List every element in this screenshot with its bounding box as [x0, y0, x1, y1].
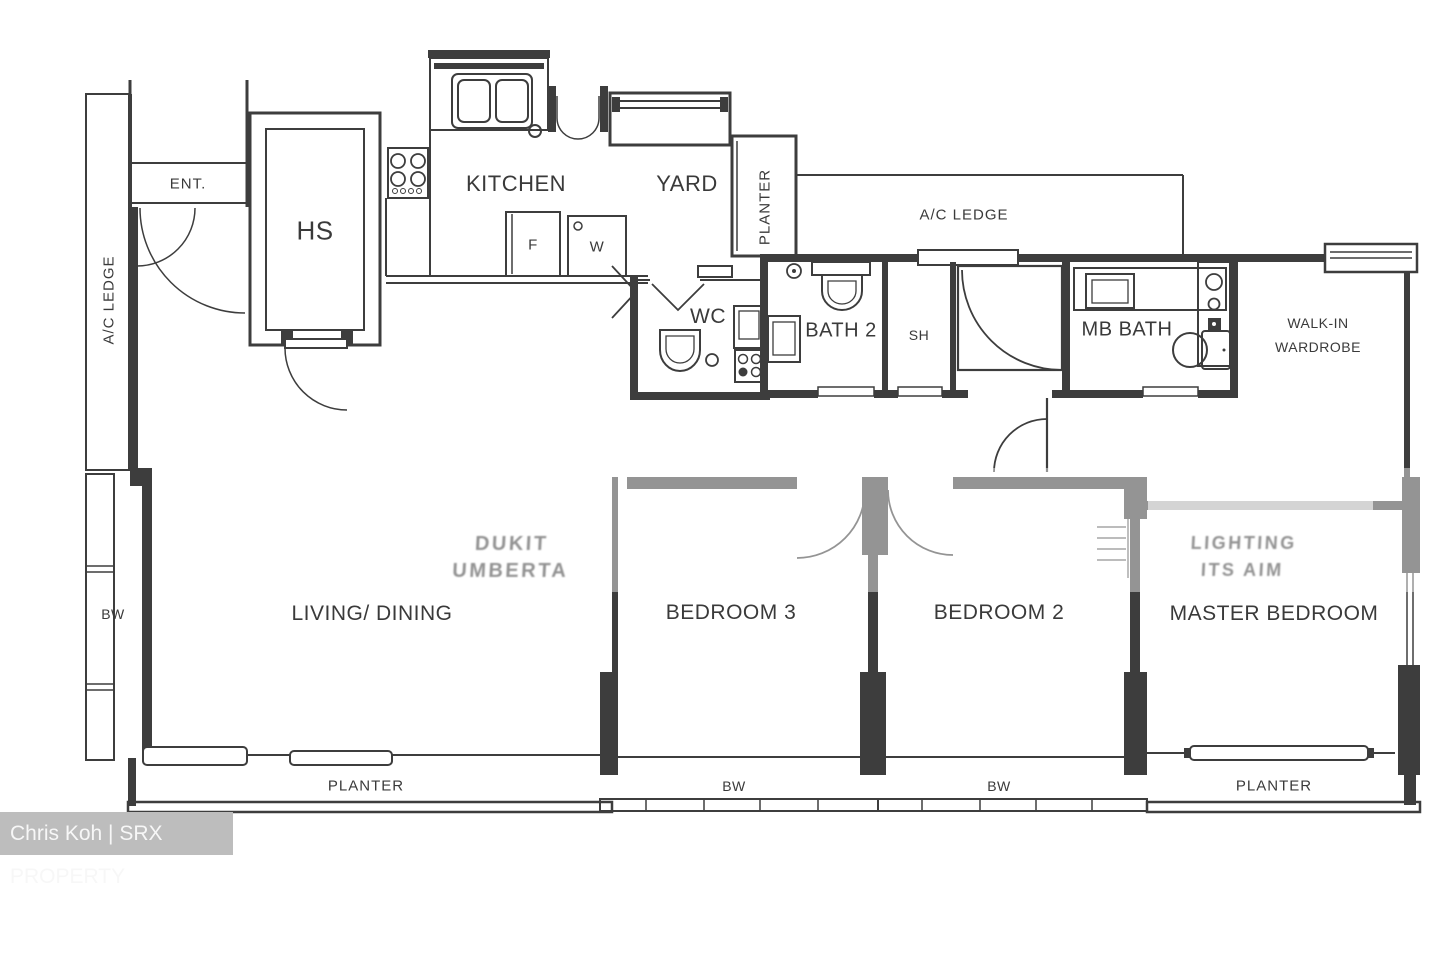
wardrobe-right-wall	[1404, 272, 1410, 477]
label-fridge: F	[528, 237, 538, 254]
label-living-dining: LIVING/ DINING	[291, 602, 452, 626]
label-ac-ledge-top: A/C LEDGE	[919, 207, 1008, 224]
bottom-walls-windows-planters	[128, 746, 1420, 812]
label-planter-yard: PLANTER	[757, 169, 774, 245]
label-washer: W	[590, 239, 605, 256]
label-wc: WC	[690, 305, 726, 329]
label-ent: ENT.	[170, 176, 207, 193]
label-bw-left: BW	[101, 606, 125, 622]
label-bath2: BATH 2	[805, 320, 877, 343]
label-yard: YARD	[656, 171, 718, 197]
label-mb-bath: MB BATH	[1082, 319, 1173, 342]
label-bedroom2: BEDROOM 2	[934, 601, 1065, 625]
ghost-right-line1: LIGHTING	[1190, 530, 1297, 557]
label-walkin-line1: WALK-IN	[1287, 315, 1348, 331]
kitchen-yard-door	[548, 86, 608, 139]
label-planter-living: PLANTER	[328, 778, 404, 795]
label-sh: SH	[909, 327, 929, 343]
label-bw-bedroom2: BW	[987, 778, 1011, 794]
label-hs: HS	[296, 216, 333, 247]
label-bw-bedroom3: BW	[722, 778, 746, 794]
label-planter-master: PLANTER	[1236, 778, 1312, 795]
ghost-right-line2: ITS AIM	[1189, 557, 1296, 584]
label-kitchen: KITCHEN	[466, 171, 566, 197]
wc-walls-fixtures	[612, 258, 770, 400]
ghost-watermark-right: LIGHTING ITS AIM	[1189, 530, 1298, 584]
hs-shelter-walls-door	[250, 113, 380, 410]
label-ac-ledge-left: A/C LEDGE	[101, 255, 118, 344]
ghost-left-line1: DUKIT	[453, 531, 570, 558]
floorplan-canvas: DUKIT UMBERTA LIGHTING ITS AIM ENT. HS K…	[0, 0, 1440, 956]
ghost-watermark-left: DUKIT UMBERTA	[452, 531, 571, 585]
entrance-walls-door	[130, 80, 247, 313]
label-master-bedroom: MASTER BEDROOM	[1170, 602, 1379, 626]
yard-window	[610, 93, 730, 145]
kitchen-counters-sink-stove	[386, 50, 648, 283]
fridge-washer-boxes	[506, 212, 626, 276]
label-walkin-line2: WARDROBE	[1275, 339, 1361, 355]
ghost-left-line2: UMBERTA	[452, 558, 569, 585]
label-bedroom3: BEDROOM 3	[666, 601, 797, 625]
left-ac-ledge-walls	[86, 94, 152, 486]
master-shower-stall-doors	[956, 262, 1070, 472]
interior-left-wall	[128, 207, 152, 806]
credit-banner: Chris Koh | SRX PROPERTY	[0, 812, 233, 855]
